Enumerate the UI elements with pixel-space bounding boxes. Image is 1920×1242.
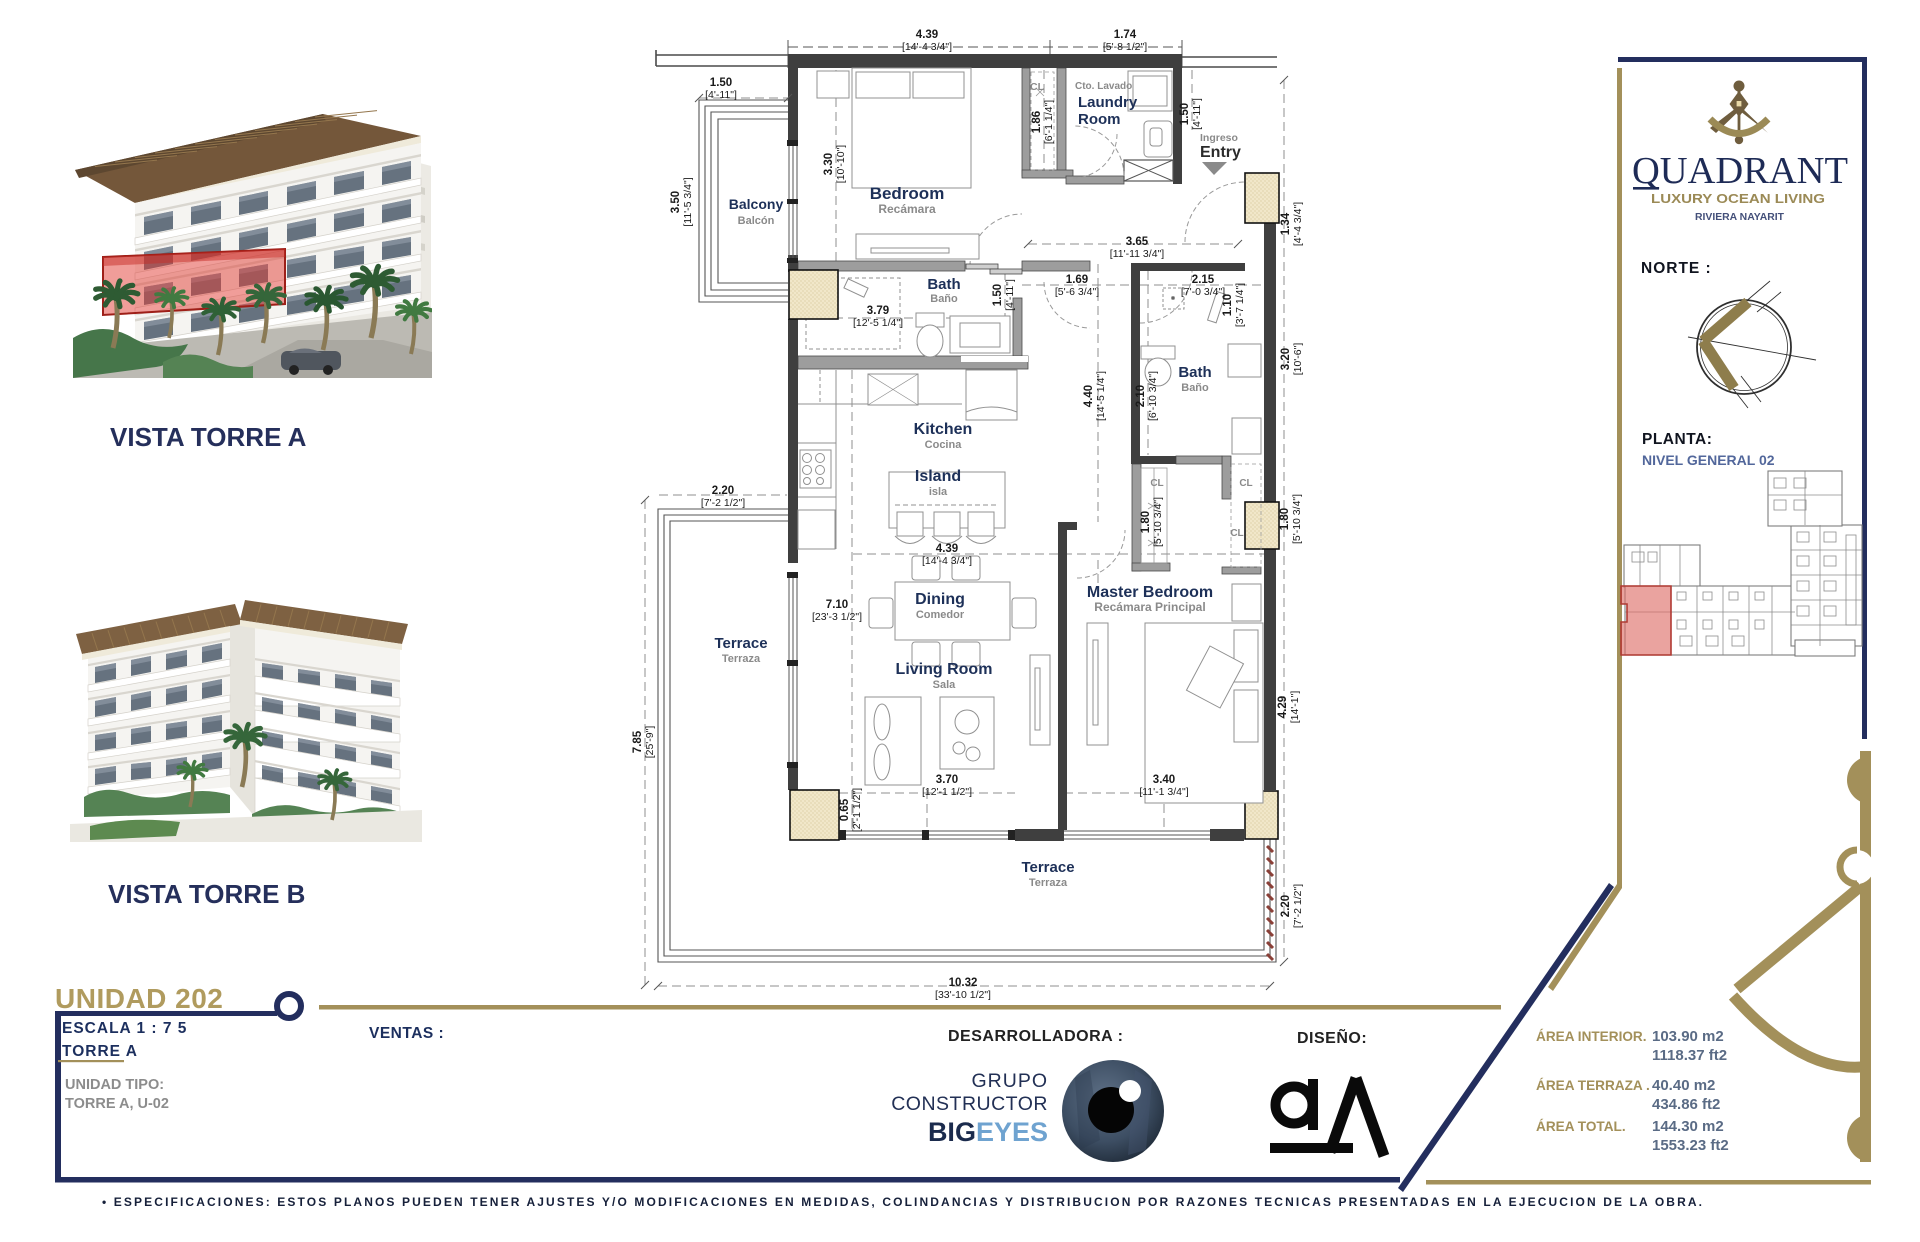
svg-text:Master Bedroom: Master Bedroom (1087, 584, 1213, 601)
svg-text:Terraza: Terraza (1029, 877, 1068, 889)
svg-text:isla: isla (929, 486, 948, 498)
svg-text:[4'-4 3/4"]: [4'-4 3/4"] (1292, 202, 1304, 246)
svg-text:ÁREA TOTAL.: ÁREA TOTAL. (1536, 1119, 1626, 1134)
svg-text:Recámara Principal: Recámara Principal (1094, 600, 1205, 614)
svg-text:NIVEL GENERAL 02: NIVEL GENERAL 02 (1642, 452, 1775, 468)
svg-text:[14'-1"]: [14'-1"] (1289, 691, 1301, 724)
svg-text:1.10: 1.10 (1222, 294, 1234, 316)
svg-text:ÁREA INTERIOR.: ÁREA INTERIOR. (1536, 1029, 1647, 1044)
svg-text:2.20: 2.20 (1280, 895, 1292, 917)
svg-text:GRUPO: GRUPO (971, 1070, 1048, 1092)
svg-text:CL: CL (1150, 478, 1163, 489)
svg-text:Entry: Entry (1200, 144, 1241, 161)
svg-text:[4'-11"]: [4'-11"] (705, 89, 737, 101)
svg-text:[5'-10 3/4"]: [5'-10 3/4"] (1291, 494, 1303, 544)
svg-text:[5'-10 3/4"]: [5'-10 3/4"] (1152, 497, 1164, 547)
svg-text:LUXURY OCEAN LIVING: LUXURY OCEAN LIVING (1651, 191, 1825, 206)
svg-text:Terrace: Terrace (1021, 859, 1074, 876)
svg-text:Living Room: Living Room (896, 661, 993, 678)
svg-text:PLANTA:: PLANTA: (1642, 431, 1712, 448)
svg-text:TORRE A, U-02: TORRE A, U-02 (65, 1096, 169, 1112)
svg-text:[7'-0 3/4"]: [7'-0 3/4"] (1181, 286, 1225, 298)
svg-text:[7'-2 1/2"]: [7'-2 1/2"] (1292, 884, 1304, 928)
svg-text:1118.37 ft2: 1118.37 ft2 (1652, 1047, 1727, 1064)
svg-text:NORTE :: NORTE : (1641, 260, 1712, 277)
svg-text:3.30: 3.30 (823, 153, 835, 175)
svg-text:[14'-5 1/4"]: [14'-5 1/4"] (1095, 371, 1107, 421)
svg-text:2.10: 2.10 (1135, 385, 1147, 407)
svg-text:[10'-6"]: [10'-6"] (1292, 343, 1304, 376)
svg-text:Dining: Dining (915, 591, 965, 608)
svg-text:Bath: Bath (927, 276, 960, 293)
svg-text:Comedor: Comedor (916, 609, 965, 621)
svg-text:Kitchen: Kitchen (914, 421, 973, 438)
svg-text:1.69: 1.69 (1066, 274, 1088, 286)
svg-text:3.40: 3.40 (1153, 774, 1175, 786)
svg-text:4.39: 4.39 (936, 543, 958, 555)
svg-text:BIGEYES: BIGEYES (928, 1117, 1048, 1147)
svg-text:Bedroom: Bedroom (870, 184, 945, 203)
svg-text:1.50: 1.50 (992, 284, 1004, 306)
svg-text:Laundry: Laundry (1078, 94, 1138, 111)
svg-text:1553.23 ft2: 1553.23 ft2 (1652, 1137, 1729, 1154)
svg-text:Balcón: Balcón (738, 215, 775, 227)
svg-text:1.34: 1.34 (1280, 212, 1292, 235)
svg-text:[5'-8 1/2"]: [5'-8 1/2"] (1103, 41, 1147, 53)
svg-text:[23'-3 1/2"]: [23'-3 1/2"] (812, 611, 862, 623)
svg-text:3.70: 3.70 (936, 774, 958, 786)
svg-text:3.20: 3.20 (1280, 348, 1292, 370)
svg-text:[25'-9"]: [25'-9"] (644, 726, 656, 759)
svg-text:Ingreso: Ingreso (1200, 132, 1238, 144)
svg-text:ÁREA TERRAZA .: ÁREA TERRAZA . (1536, 1078, 1650, 1093)
svg-text:1.86: 1.86 (1031, 111, 1043, 133)
svg-text:Baño: Baño (1181, 382, 1209, 394)
svg-text:Recámara: Recámara (878, 202, 936, 216)
svg-text:[11'-5 3/4"]: [11'-5 3/4"] (682, 177, 694, 226)
svg-text:434.86 ft2: 434.86 ft2 (1652, 1096, 1720, 1113)
svg-text:4.29: 4.29 (1277, 696, 1289, 718)
svg-text:Terraza: Terraza (722, 653, 761, 665)
svg-text:40.40 m2: 40.40 m2 (1652, 1077, 1715, 1094)
svg-text:CL: CL (1239, 478, 1252, 489)
svg-text:1.74: 1.74 (1114, 29, 1137, 41)
svg-text:4.40: 4.40 (1083, 385, 1095, 407)
svg-text:1.80: 1.80 (1140, 511, 1152, 533)
svg-text:CONSTRUCTOR: CONSTRUCTOR (891, 1093, 1048, 1115)
svg-text:[11'-11 3/4"]: [11'-11 3/4"] (1110, 248, 1164, 260)
svg-text:[6'-10 3/4"]: [6'-10 3/4"] (1147, 371, 1159, 421)
svg-text:Balcony: Balcony (729, 196, 784, 212)
svg-text:103.90 m2: 103.90 m2 (1652, 1028, 1724, 1045)
svg-text:[10'-10"]: [10'-10"] (835, 145, 847, 184)
svg-text:2.15: 2.15 (1192, 274, 1215, 286)
svg-text:1.80: 1.80 (1279, 508, 1291, 530)
svg-text:UNIDAD 202: UNIDAD 202 (55, 983, 223, 1014)
svg-text:RIVIERA NAYARIT: RIVIERA NAYARIT (1695, 211, 1785, 223)
svg-text:Island: Island (915, 468, 961, 485)
svg-text:Room: Room (1078, 111, 1121, 128)
svg-text:[7'-2 1/2"]: [7'-2 1/2"] (701, 497, 745, 509)
svg-text:0.65: 0.65 (839, 798, 851, 821)
svg-text:144.30 m2: 144.30 m2 (1652, 1118, 1724, 1135)
svg-text:3.79: 3.79 (867, 305, 889, 317)
svg-text:[12'-5 1/4"]: [12'-5 1/4"] (853, 317, 903, 329)
svg-text:CL: CL (1230, 528, 1243, 539)
svg-text:3.65: 3.65 (1126, 236, 1149, 248)
svg-text:3.50: 3.50 (670, 191, 682, 213)
svg-text:[5'-6 3/4"]: [5'-6 3/4"] (1055, 286, 1099, 298)
svg-text:Terrace: Terrace (714, 635, 767, 652)
svg-text:[4'-11"]: [4'-11"] (1004, 279, 1016, 311)
svg-text:[3'-7 1/4"]: [3'-7 1/4"] (1234, 283, 1246, 327)
svg-text:4.39: 4.39 (916, 29, 938, 41)
svg-text:Baño: Baño (930, 293, 958, 305)
svg-text:• ESPECIFICACIONES: ESTOS PL: • ESPECIFICACIONES: ESTOS PLANOS PUEDEN … (102, 1195, 1702, 1209)
svg-text:[14'-4 3/4"]: [14'-4 3/4"] (902, 41, 952, 53)
svg-text:DISEÑO:: DISEÑO: (1297, 1027, 1367, 1047)
svg-text:[12'-1 1/2"]: [12'-1 1/2"] (922, 786, 972, 798)
svg-text:Bath: Bath (1178, 364, 1211, 381)
svg-text:QUADRANT: QUADRANT (1632, 150, 1848, 192)
svg-text:1.50: 1.50 (1179, 103, 1191, 125)
svg-text:DESARROLLADORA :: DESARROLLADORA : (948, 1028, 1123, 1045)
svg-text:7.10: 7.10 (826, 599, 848, 611)
svg-text:Cocina: Cocina (925, 439, 963, 451)
svg-text:[4'-11"]: [4'-11"] (1191, 98, 1203, 130)
svg-text:[11'-1 3/4"]: [11'-1 3/4"] (1139, 786, 1188, 798)
svg-text:UNIDAD TIPO:: UNIDAD TIPO: (65, 1077, 164, 1093)
svg-text:Cto. Lavado: Cto. Lavado (1075, 81, 1132, 92)
svg-text:CL: CL (1030, 81, 1045, 93)
svg-text:VENTAS :: VENTAS : (369, 1025, 444, 1042)
svg-text:2.20: 2.20 (712, 485, 734, 497)
svg-text:[2'-1 1/2"]: [2'-1 1/2"] (851, 788, 863, 832)
svg-text:ESCALA 1 : 7 5: ESCALA 1 : 7 5 (62, 1020, 187, 1037)
svg-text:1.50: 1.50 (710, 77, 732, 89)
svg-text:7.85: 7.85 (632, 730, 644, 753)
svg-text:TORRE A: TORRE A (62, 1043, 138, 1060)
svg-text:[6'-1 1/4"]: [6'-1 1/4"] (1043, 100, 1055, 144)
svg-text:[14'-4 3/4"]: [14'-4 3/4"] (922, 555, 972, 567)
svg-text:Sala: Sala (933, 679, 957, 691)
